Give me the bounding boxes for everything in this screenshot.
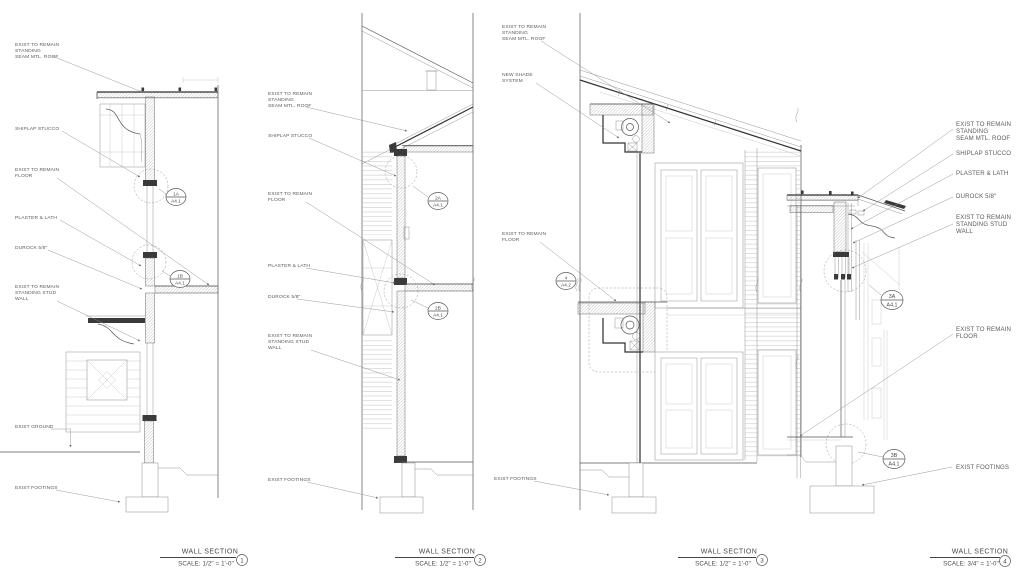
section-2-linework <box>361 13 474 513</box>
section-2-scale: SCALE: 1/2" = 1'-0" <box>415 561 471 568</box>
section-1-title: WALL SECTION <box>182 549 238 556</box>
callout-3a-ref: 3A <box>889 294 896 300</box>
label-exist-footings: EXIST FOOTINGS <box>15 485 58 491</box>
label-floor-line2: FLOOR <box>502 237 520 243</box>
title-block-4: WALL SECTION SCALE: 3/4" = 1'-0" 4 <box>930 549 1011 568</box>
callout-2a[interactable]: 2A A4.1 <box>413 186 448 210</box>
label-durock: DUROCK 5/8" <box>268 294 301 300</box>
label-roof-line1: EXIST TO REMAIN <box>15 42 60 48</box>
label-stud-line1: EXIST TO REMAIN <box>268 333 313 339</box>
label-stud-line3: WALL <box>268 345 282 351</box>
section-3-title: WALL SECTION <box>701 549 757 556</box>
wall-section-4: EXIST TO REMAIN STANDING SEAM MTL. ROOF … <box>787 108 1011 568</box>
section-3-scale: SCALE: 1/2" = 1'-0" <box>695 561 751 568</box>
callout-3a[interactable]: 3A A4.1 <box>869 285 903 310</box>
label-roof-line1: EXIST TO REMAIN <box>956 121 1011 128</box>
label-stud-line2: STANDING STUD <box>956 221 1008 228</box>
title-block-1: WALL SECTION SCALE: 1/2" = 1'-0" 1 <box>160 549 248 568</box>
label-roof-line2: STANDING <box>15 48 41 54</box>
label-exist-ground: EXIST GROUND <box>15 424 54 430</box>
callout-3a-sheet: A4.1 <box>887 303 898 309</box>
label-plaster-lath: PLASTER & LATH <box>956 170 1008 177</box>
label-plaster-lath: PLASTER & LATH <box>268 263 310 269</box>
title-block-3: WALL SECTION SCALE: 1/2" = 1'-0" 3 <box>678 549 768 568</box>
label-floor-line1: EXIST TO REMAIN <box>15 167 60 173</box>
label-roof-line3: SEAM MTL. ROOF <box>956 135 1010 142</box>
section-3-number: 3 <box>760 557 764 564</box>
label-roof-line3: SEAM MTL. ROOF <box>502 36 546 42</box>
callout-3b-ref: 3B <box>891 453 898 459</box>
label-shade-line2: SYSTEM <box>502 78 523 84</box>
label-stud-line1: EXIST TO REMAIN <box>15 284 60 290</box>
label-roof-line2: STANDING <box>956 128 988 135</box>
wall-section-3: EXIST TO REMAIN STANDING SEAM MTL. ROOF … <box>494 13 802 568</box>
section-4-number: 4 <box>1003 558 1007 565</box>
drawing-sheet: EXIST TO REMAIN STANDING SEAM MTL. ROOF … <box>0 0 1024 581</box>
callout-2a-sheet: A4.1 <box>433 203 443 208</box>
label-floor-line2: FLOOR <box>15 173 33 179</box>
label-stud-line2: STANDING STUD <box>15 290 56 296</box>
callout-1a-sheet: A4.1 <box>171 199 181 204</box>
label-roof-line1: EXIST TO REMAIN <box>502 24 547 30</box>
label-stud-line3: WALL <box>956 228 973 235</box>
label-roof-line3: SEAM MTL. ROOF <box>268 103 312 109</box>
callout-4[interactable]: 4 A4.2 <box>556 273 578 292</box>
label-plaster-lath: PLASTER & LATH <box>15 215 57 221</box>
section-2-number: 2 <box>478 557 482 564</box>
title-block-2: WALL SECTION SCALE: 1/2" = 1'-0" 2 <box>395 549 486 568</box>
section-3-labels: EXIST TO REMAIN STANDING SEAM MTL. ROOF … <box>494 24 670 495</box>
label-durock: DUROCK 5/8" <box>15 245 48 251</box>
section-4-title: WALL SECTION <box>952 549 1008 556</box>
callout-1a[interactable]: 1A A4.1 <box>159 189 186 206</box>
label-exist-footings: EXIST FOOTINGS <box>268 477 311 483</box>
label-durock: DUROCK 5/8" <box>956 193 996 200</box>
label-exist-footings: EXIST FOOTINGS <box>494 476 537 482</box>
label-stud-line3: WALL <box>15 296 29 302</box>
section-2-title: WALL SECTION <box>419 549 475 556</box>
wall-section-2: EXIST TO REMAIN STANDING SEAM MTL. ROOF … <box>268 13 486 568</box>
label-stud-line2: STANDING STUD <box>268 339 309 345</box>
callout-1b-ref: 1B <box>177 273 183 278</box>
label-floor-line2: FLOOR <box>956 333 978 340</box>
section-4-scale: SCALE: 3/4" = 1'-0" <box>943 561 999 568</box>
label-shiplap-stucco: SHIPLAP STUCCO <box>956 150 1011 157</box>
section-1-scale: SCALE: 1/2" = 1'-0" <box>178 561 234 568</box>
callout-2b-sheet: A4.1 <box>433 313 443 318</box>
wall-section-1: EXIST TO REMAIN STANDING SEAM MTL. ROOF … <box>0 42 248 568</box>
label-roof-line3: SEAM MTL. ROOF <box>15 54 59 60</box>
callout-2a-ref: 2A <box>435 195 442 200</box>
callout-1b[interactable]: 1B A4.1 <box>162 271 190 288</box>
label-floor-line1: EXIST TO REMAIN <box>268 191 313 197</box>
label-shiplap-stucco: SHIPLAP STUCCO <box>268 133 312 139</box>
label-shiplap-stucco: SHIPLAP STUCCO <box>15 126 59 132</box>
callout-1a-ref: 1A <box>173 191 180 196</box>
callout-3b[interactable]: 3B A4.1 <box>858 450 905 469</box>
callout-1b-sheet: A4.1 <box>175 281 185 286</box>
callout-4-sheet: A4.2 <box>561 283 571 288</box>
label-shade-line1: NEW SHADE <box>502 72 533 78</box>
label-floor-line1: EXIST TO REMAIN <box>502 231 547 237</box>
wall-sections-drawing: EXIST TO REMAIN STANDING SEAM MTL. ROOF … <box>0 0 1024 581</box>
label-stud-line1: EXIST TO REMAIN <box>956 214 1011 221</box>
label-roof-line1: EXIST TO REMAIN <box>268 91 313 97</box>
callout-2b-ref: 2B <box>435 305 441 310</box>
label-roof-line2: STANDING <box>268 97 294 103</box>
callout-2b[interactable]: 2B A4.1 <box>411 300 448 320</box>
label-floor-line1: EXIST TO REMAIN <box>956 326 1011 333</box>
callout-3b-sheet: A4.1 <box>889 462 900 468</box>
section-1-number: 1 <box>240 557 244 564</box>
label-exist-footings: EXIST FOOTINGS <box>956 464 1009 471</box>
label-floor-line2: FLOOR <box>268 197 286 203</box>
section-3-linework <box>578 13 802 513</box>
label-roof-line2: STANDING <box>502 30 528 36</box>
callout-4-ref: 4 <box>565 275 568 280</box>
section-4-labels: EXIST TO REMAIN STANDING SEAM MTL. ROOF … <box>800 121 1011 485</box>
